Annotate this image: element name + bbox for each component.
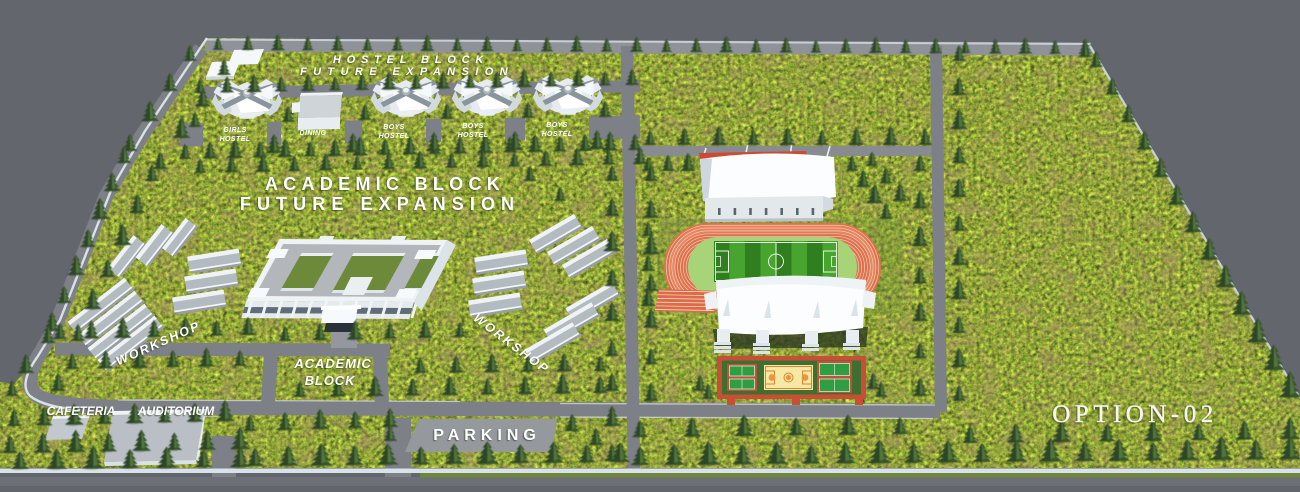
- svg-text:CAFETERIA: CAFETERIA: [47, 404, 116, 418]
- svg-text:FUTURE EXPANSION: FUTURE EXPANSION: [300, 66, 514, 78]
- svg-text:ACADEMIC BLOCK: ACADEMIC BLOCK: [265, 174, 505, 194]
- svg-text:AUDITORIUM: AUDITORIUM: [137, 404, 215, 418]
- svg-text:BOYS: BOYS: [462, 123, 483, 130]
- svg-text:DINING: DINING: [300, 130, 327, 137]
- svg-text:ACADEMIC: ACADEMIC: [293, 356, 371, 371]
- svg-text:BOYS: BOYS: [546, 122, 567, 129]
- svg-text:HOSTEL: HOSTEL: [379, 133, 410, 140]
- svg-text:PARKING: PARKING: [433, 427, 541, 444]
- svg-text:GIRLS: GIRLS: [223, 127, 246, 134]
- svg-text:OPTION-02: OPTION-02: [1052, 401, 1218, 428]
- svg-text:BLOCK: BLOCK: [305, 373, 356, 388]
- svg-text:BOYS: BOYS: [383, 124, 404, 131]
- svg-text:HOSTEL: HOSTEL: [220, 136, 251, 143]
- svg-text:HOSTEL: HOSTEL: [542, 131, 573, 138]
- svg-text:HOSTEL BLOCK: HOSTEL BLOCK: [333, 54, 489, 66]
- svg-text:HOSTEL: HOSTEL: [458, 132, 489, 139]
- svg-text:FUTURE EXPANSION: FUTURE EXPANSION: [240, 194, 520, 214]
